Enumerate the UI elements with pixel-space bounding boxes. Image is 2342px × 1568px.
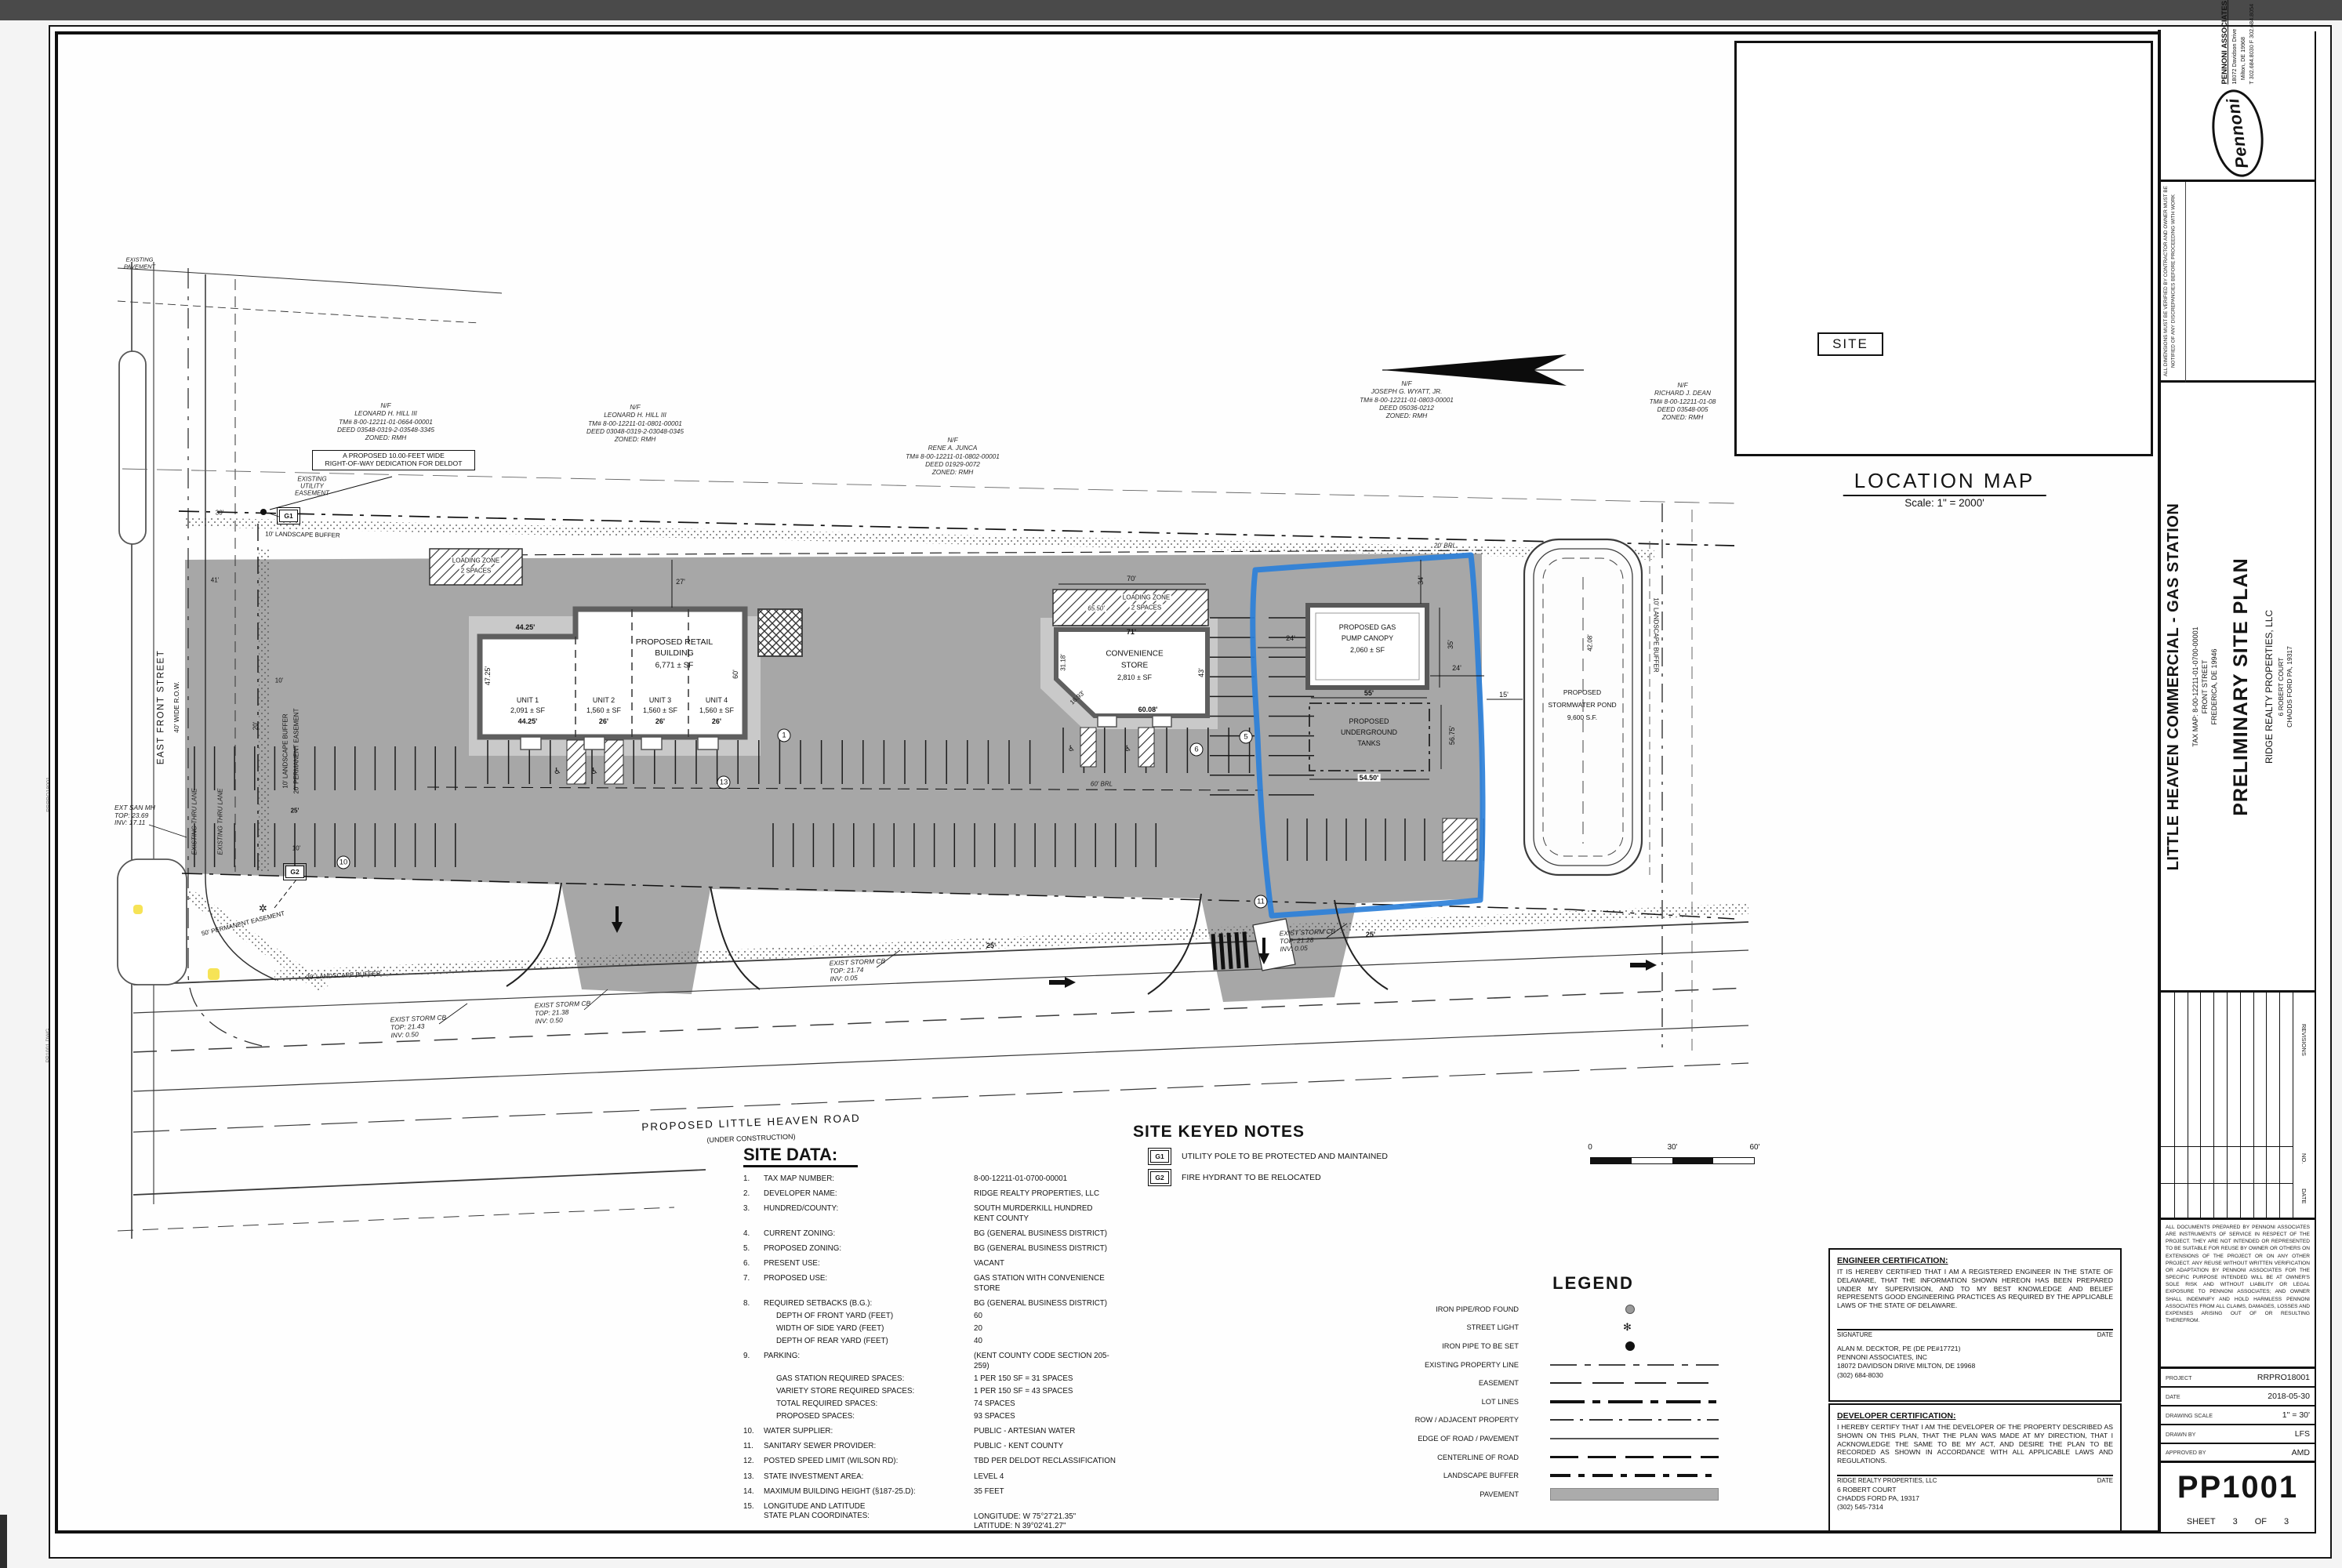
unit2-label: UNIT 2 [593,696,615,704]
dim-30: 30' [216,509,223,516]
ada-stall [1080,728,1096,767]
buffer-right-label: 10' LANDSCAPE BUFFER [1652,597,1659,672]
ada-symbol: ♿ [590,767,598,777]
dim-35: 35' [1447,640,1454,649]
landscape-buffer-swatch [1550,1474,1719,1477]
pond-label: PROPOSED [1563,689,1601,697]
pond-label2: STORMWATER POND [1548,702,1616,710]
san-mh-label: EXT SAN MHTOP: 23.69INV: 17.11 [114,804,155,827]
dim-3118: 31.18' [1059,654,1066,671]
dim-20: 20' [252,722,259,730]
sheet-number: PP1001 [2161,1463,2315,1512]
conv-store-label2: STORE [1121,661,1148,670]
dim-5450: 54.50' [1358,774,1381,782]
location-map-title: LOCATION MAP [1843,469,2046,496]
pavement-swatch [1550,1488,1719,1501]
brl20-label: 20' BRL [1434,542,1456,549]
site-data-panel: SITE DATA: 1.TAX MAP NUMBER:8-00-12211-0… [743,1145,1124,1537]
dim-25: 25' [291,807,300,814]
dim-27: 27' [676,578,685,586]
canopy-label: PROPOSED GAS [1339,623,1396,631]
utility-pole [260,509,267,515]
location-map-scale: Scale: 1" = 2000' [1904,497,1984,509]
owner-label: N/FLEONARD H. HILL III TM# 8-00-12211-01… [337,401,434,441]
dim-4725: 47.25' [484,666,492,685]
dim-55: 55' [1364,689,1374,697]
iron-set-symbol [1625,1341,1635,1351]
tanks-label: PROPOSED [1349,717,1389,725]
thru-lane-label: EXISTING THRU LANE [216,789,223,855]
centerline-swatch [1550,1456,1719,1458]
site-label-box: SITE [1817,332,1883,356]
highlight-mark [208,968,220,980]
property-line-swatch [1550,1364,1719,1366]
legend-title: LEGEND [1476,1273,1711,1294]
dim-24: 24' [1286,634,1295,642]
dim-34: 34' [1417,575,1425,585]
ada-stall [1138,728,1154,767]
ada-symbol: ♿ [554,767,561,777]
loading-zone-label: LOADING ZONE [451,557,501,564]
conv-store-sf: 2,810 ± SF [1117,673,1152,681]
unit2-sf: 1,560 ± SF [586,706,621,714]
unit4-sf: 1,560 ± SF [699,706,734,714]
dim-43: 43' [1197,668,1205,677]
unit3-sf: 1,560 ± SF [643,706,677,714]
easement-swatch [1550,1382,1719,1385]
canopy-label2: PUMP CANOPY [1342,634,1393,642]
unit4-width: 26' [712,717,721,725]
pond-sf: 9,600 S.F. [1567,714,1597,722]
storm-cb-label: EXIST STORM CBTOP: 21.38INV: 0.50 [534,1000,591,1025]
keyed-note-marker-g2: G2 [285,866,304,878]
retail-building-sf: 6,771 ± SF [655,661,694,670]
ada-stall [567,740,586,784]
ada-stall [1443,818,1477,861]
note-key-g2: G2 [1150,1171,1169,1184]
engineer-certification: ENGINEER CERTIFICATION: IT IS HEREBY CER… [1828,1248,2122,1402]
dim-15: 15' [1499,691,1509,699]
tanks-label3: TANKS [1357,739,1380,747]
dim-70: 70' [1127,575,1136,583]
graphic-scale-bar [1590,1157,1755,1164]
dumpster-pad [758,609,802,656]
loading-zone-label: LOADING ZONE [1121,593,1171,601]
scale-tick-0: 0 [1588,1143,1592,1152]
stall-count: 11 [1255,895,1268,909]
storm-cb-label: EXIST STORM CBTOP: 21.43INV: 0.50 [390,1014,447,1040]
unit3-width: 26' [655,717,665,725]
easement-left-label: 20' PERMANENT EASEMENT [292,709,300,794]
dim-71: 71' [1127,628,1136,636]
canopy-sf: 2,060 ± SF [1350,646,1385,654]
note-text-g1: UTILITY POLE TO BE PROTECTED AND MAINTAI… [1182,1152,1388,1161]
unit1-label: UNIT 1 [517,696,539,704]
existing-easement-label: EXISTINGUTILITYEASEMENT [295,475,329,496]
stall-count: 13 [717,776,731,789]
conv-store-label: CONVENIENCE [1106,649,1163,658]
unit1-sf: 2,091 ± SF [510,706,545,714]
legend-panel: LEGEND IRON PIPE/ROD FOUND STREET LIGHT✻… [1382,1273,1789,1504]
thru-lane-label: EXISTING THRU LANE [191,789,198,855]
dim-6550: 65.50' [1086,604,1106,612]
retail-building-label: PROPOSED RETAIL [636,638,713,648]
loading-zone-spaces: 2 SPACES [1130,604,1164,611]
stall-count: 10 [337,856,350,869]
street-median [119,351,146,544]
site-data-title: SITE DATA: [743,1145,858,1167]
dim-41: 41' [211,576,219,583]
location-map-frame [1734,41,2153,456]
storm-cb-label: EXIST STORM CBTOP: 21.28INV: 0.05 [1279,927,1336,953]
hydrant-symbol: ✲ [259,903,267,915]
keyed-notes-title: SITE KEYED NOTES [1133,1123,1541,1142]
unit3-label: UNIT 3 [649,696,671,704]
site-keyed-notes: SITE KEYED NOTES G1 UTILITY POLE TO BE P… [1133,1123,1541,1184]
owner-label: N/FRENE A. JUNCA TM# 8-00-12211-01-0802-… [906,436,1000,476]
scale-tick-30: 30' [1667,1143,1677,1152]
pennoni-logo: Pennoni [2207,86,2269,180]
street-name-label: EAST FRONT STREET [156,650,166,764]
title-area: LITTLE HEAVEN COMMERCIAL - GAS STATION T… [2161,383,2315,993]
owner-label: N/FJOSEPH G. WYATT, JR. TM# 8-00-12211-0… [1360,379,1454,419]
storm-cb-label: EXIST STORM CBTOP: 21.74INV: 0.05 [829,957,886,983]
unit2-width: 26' [599,717,608,725]
owner-label: N/FRICHARD J. DEAN TM# 8-00-12211-01-08D… [1650,381,1716,421]
dim-5675: 56.75' [1448,726,1456,745]
scale-tick-60: 60' [1749,1143,1759,1152]
street-median [118,859,187,985]
firm-name: PENNONI ASSOCIATES INC. [2220,32,2229,84]
iron-found-symbol [1625,1305,1635,1314]
dim-4208: 42.08' [1586,634,1593,652]
firm-logo-box: Pennoni PENNONI ASSOCIATES INC. 18072 Da… [2161,30,2315,182]
note-key-g1: G1 [1150,1150,1169,1163]
keyed-note-marker-g1: G1 [279,510,298,522]
stall-count: 5 [1240,731,1253,744]
buffer-left-label: 10' LANDSCAPE BUFFER [281,713,289,788]
street-light-symbol: ✻ [1623,1321,1632,1334]
stall-count: 1 [778,729,791,742]
dim-4425: 44.25' [516,623,536,631]
unit1-width: 44.25' [518,717,538,725]
developer-certification: DEVELOPER CERTIFICATION: I HEREBY CERTIF… [1828,1403,2122,1532]
sheet-title: PRELIMINARY SITE PLAN [2230,389,2253,985]
ada-stall [605,740,623,784]
ada-symbol: ♿ [1068,745,1075,753]
dim-6008: 60.08' [1138,706,1158,713]
dim-10: 10' [275,677,283,684]
seal-area [2186,182,2315,383]
drawing-page: PLOTTED: 2018-05-30 RRPRO18001 PP1001.DW… [0,0,2342,1568]
title-block: Pennoni PENNONI ASSOCIATES INC. 18072 Da… [2158,30,2315,1532]
highlight-mark [133,905,143,914]
retail-building-label2: BUILDING [655,649,694,659]
dim-25c: 25' [1366,931,1375,938]
unit4-label: UNIT 4 [706,696,728,704]
contractor-note-strip: ALL DIMENSIONS MUST BE VERIFIED BY CONTR… [2161,182,2186,383]
tanks-label2: UNDERGROUND [1341,728,1397,736]
owner-label: N/FLEONARD H. HILL III TM# 8-00-12211-01… [586,403,684,443]
row-adjacent-swatch [1550,1419,1719,1421]
sheet-count-row: SHEET3 OF3 [2161,1512,2315,1532]
brl60-label: 60' BRL [1091,780,1113,787]
stall-count: 6 [1190,743,1204,757]
existing-pavement-label: EXISTINGPAVEMENT [124,256,155,270]
revision-table: REVISIONS NO. DATE [2161,993,2315,1220]
buffer-top-label: 10' LANDSCAPE BUFFER [265,530,340,539]
edge-of-road-swatch [1550,1438,1719,1439]
dim-60: 60' [732,670,739,679]
ada-symbol: ♿ [1124,745,1131,753]
dim-10b: 10' [292,844,300,851]
street-row-label: 40' WIDE R.O.W. [173,681,181,732]
row-dedication-callout: A PROPOSED 10.00-FEET WIDERIGHT-OF-WAY D… [312,450,475,470]
dim-24b: 24' [1452,664,1461,672]
loading-zone-spaces: 2 SPACES [459,567,493,574]
lot-lines-swatch [1550,1400,1719,1404]
project-title: LITTLE HEAVEN COMMERCIAL - GAS STATION [2165,389,2183,985]
client-name: RIDGE REALTY PROPERTIES, LLC [2264,389,2275,985]
dim-25b: 25' [986,942,996,949]
reuse-disclaimer: ALL DOCUMENTS PREPARED BY PENNONI ASSOCI… [2161,1220,2315,1369]
note-text-g2: FIRE HYDRANT TO BE RELOCATED [1182,1173,1321,1182]
